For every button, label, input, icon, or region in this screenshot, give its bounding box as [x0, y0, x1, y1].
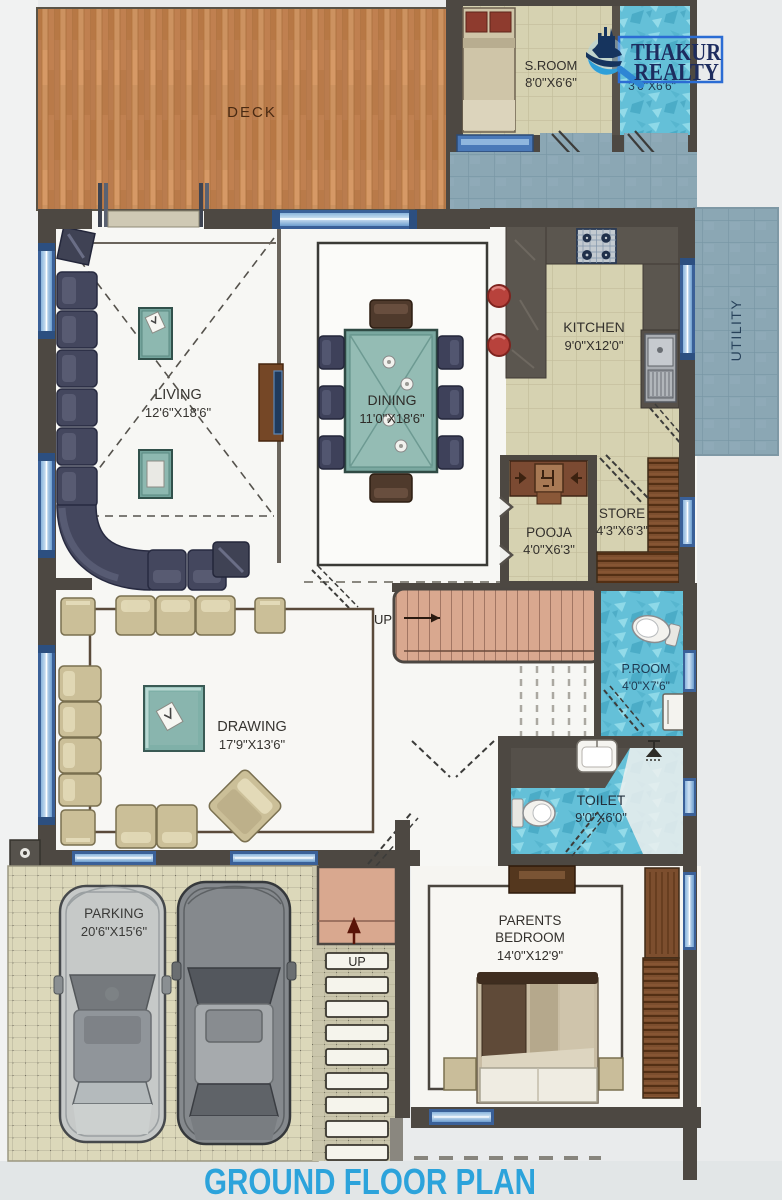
svg-text:P.ROOM: P.ROOM: [621, 662, 670, 676]
svg-text:UTILITY: UTILITY: [728, 299, 744, 362]
svg-text:14'0"X12'9": 14'0"X12'9": [497, 948, 564, 963]
svg-text:UP: UP: [348, 955, 365, 969]
svg-text:9'0"X6'0": 9'0"X6'0": [575, 810, 627, 825]
svg-text:4'0"X6'3": 4'0"X6'3": [523, 542, 575, 557]
svg-text:KITCHEN: KITCHEN: [563, 319, 624, 335]
svg-text:STORE: STORE: [599, 506, 645, 521]
svg-text:PARENTS: PARENTS: [499, 913, 562, 928]
svg-text:UP: UP: [374, 612, 392, 627]
svg-text:11'0"X18'6": 11'0"X18'6": [359, 411, 425, 426]
svg-text:BEDROOM: BEDROOM: [495, 930, 565, 945]
svg-text:PARKING: PARKING: [84, 906, 144, 921]
svg-text:LIVING: LIVING: [154, 387, 202, 403]
svg-text:4'3"X6'3": 4'3"X6'3": [596, 523, 648, 538]
svg-text:20'6"X15'6": 20'6"X15'6": [81, 924, 148, 939]
svg-text:REALTY: REALTY: [634, 60, 719, 86]
svg-text:DECK: DECK: [227, 104, 277, 121]
svg-text:8'0"X6'6": 8'0"X6'6": [525, 75, 577, 90]
svg-text:GROUND FLOOR PLAN: GROUND FLOOR PLAN: [204, 1161, 536, 1200]
svg-text:TOILET: TOILET: [577, 792, 626, 808]
svg-text:DINING: DINING: [368, 392, 417, 408]
svg-text:17'9"X13'6": 17'9"X13'6": [219, 737, 286, 752]
svg-text:4'0"X7'6": 4'0"X7'6": [622, 679, 670, 693]
svg-text:POOJA: POOJA: [526, 525, 572, 540]
svg-text:S.ROOM: S.ROOM: [525, 58, 578, 73]
svg-text:DRAWING: DRAWING: [217, 719, 287, 735]
svg-text:12'6"X18'6": 12'6"X18'6": [145, 405, 212, 420]
svg-text:9'0"X12'0": 9'0"X12'0": [564, 338, 623, 353]
